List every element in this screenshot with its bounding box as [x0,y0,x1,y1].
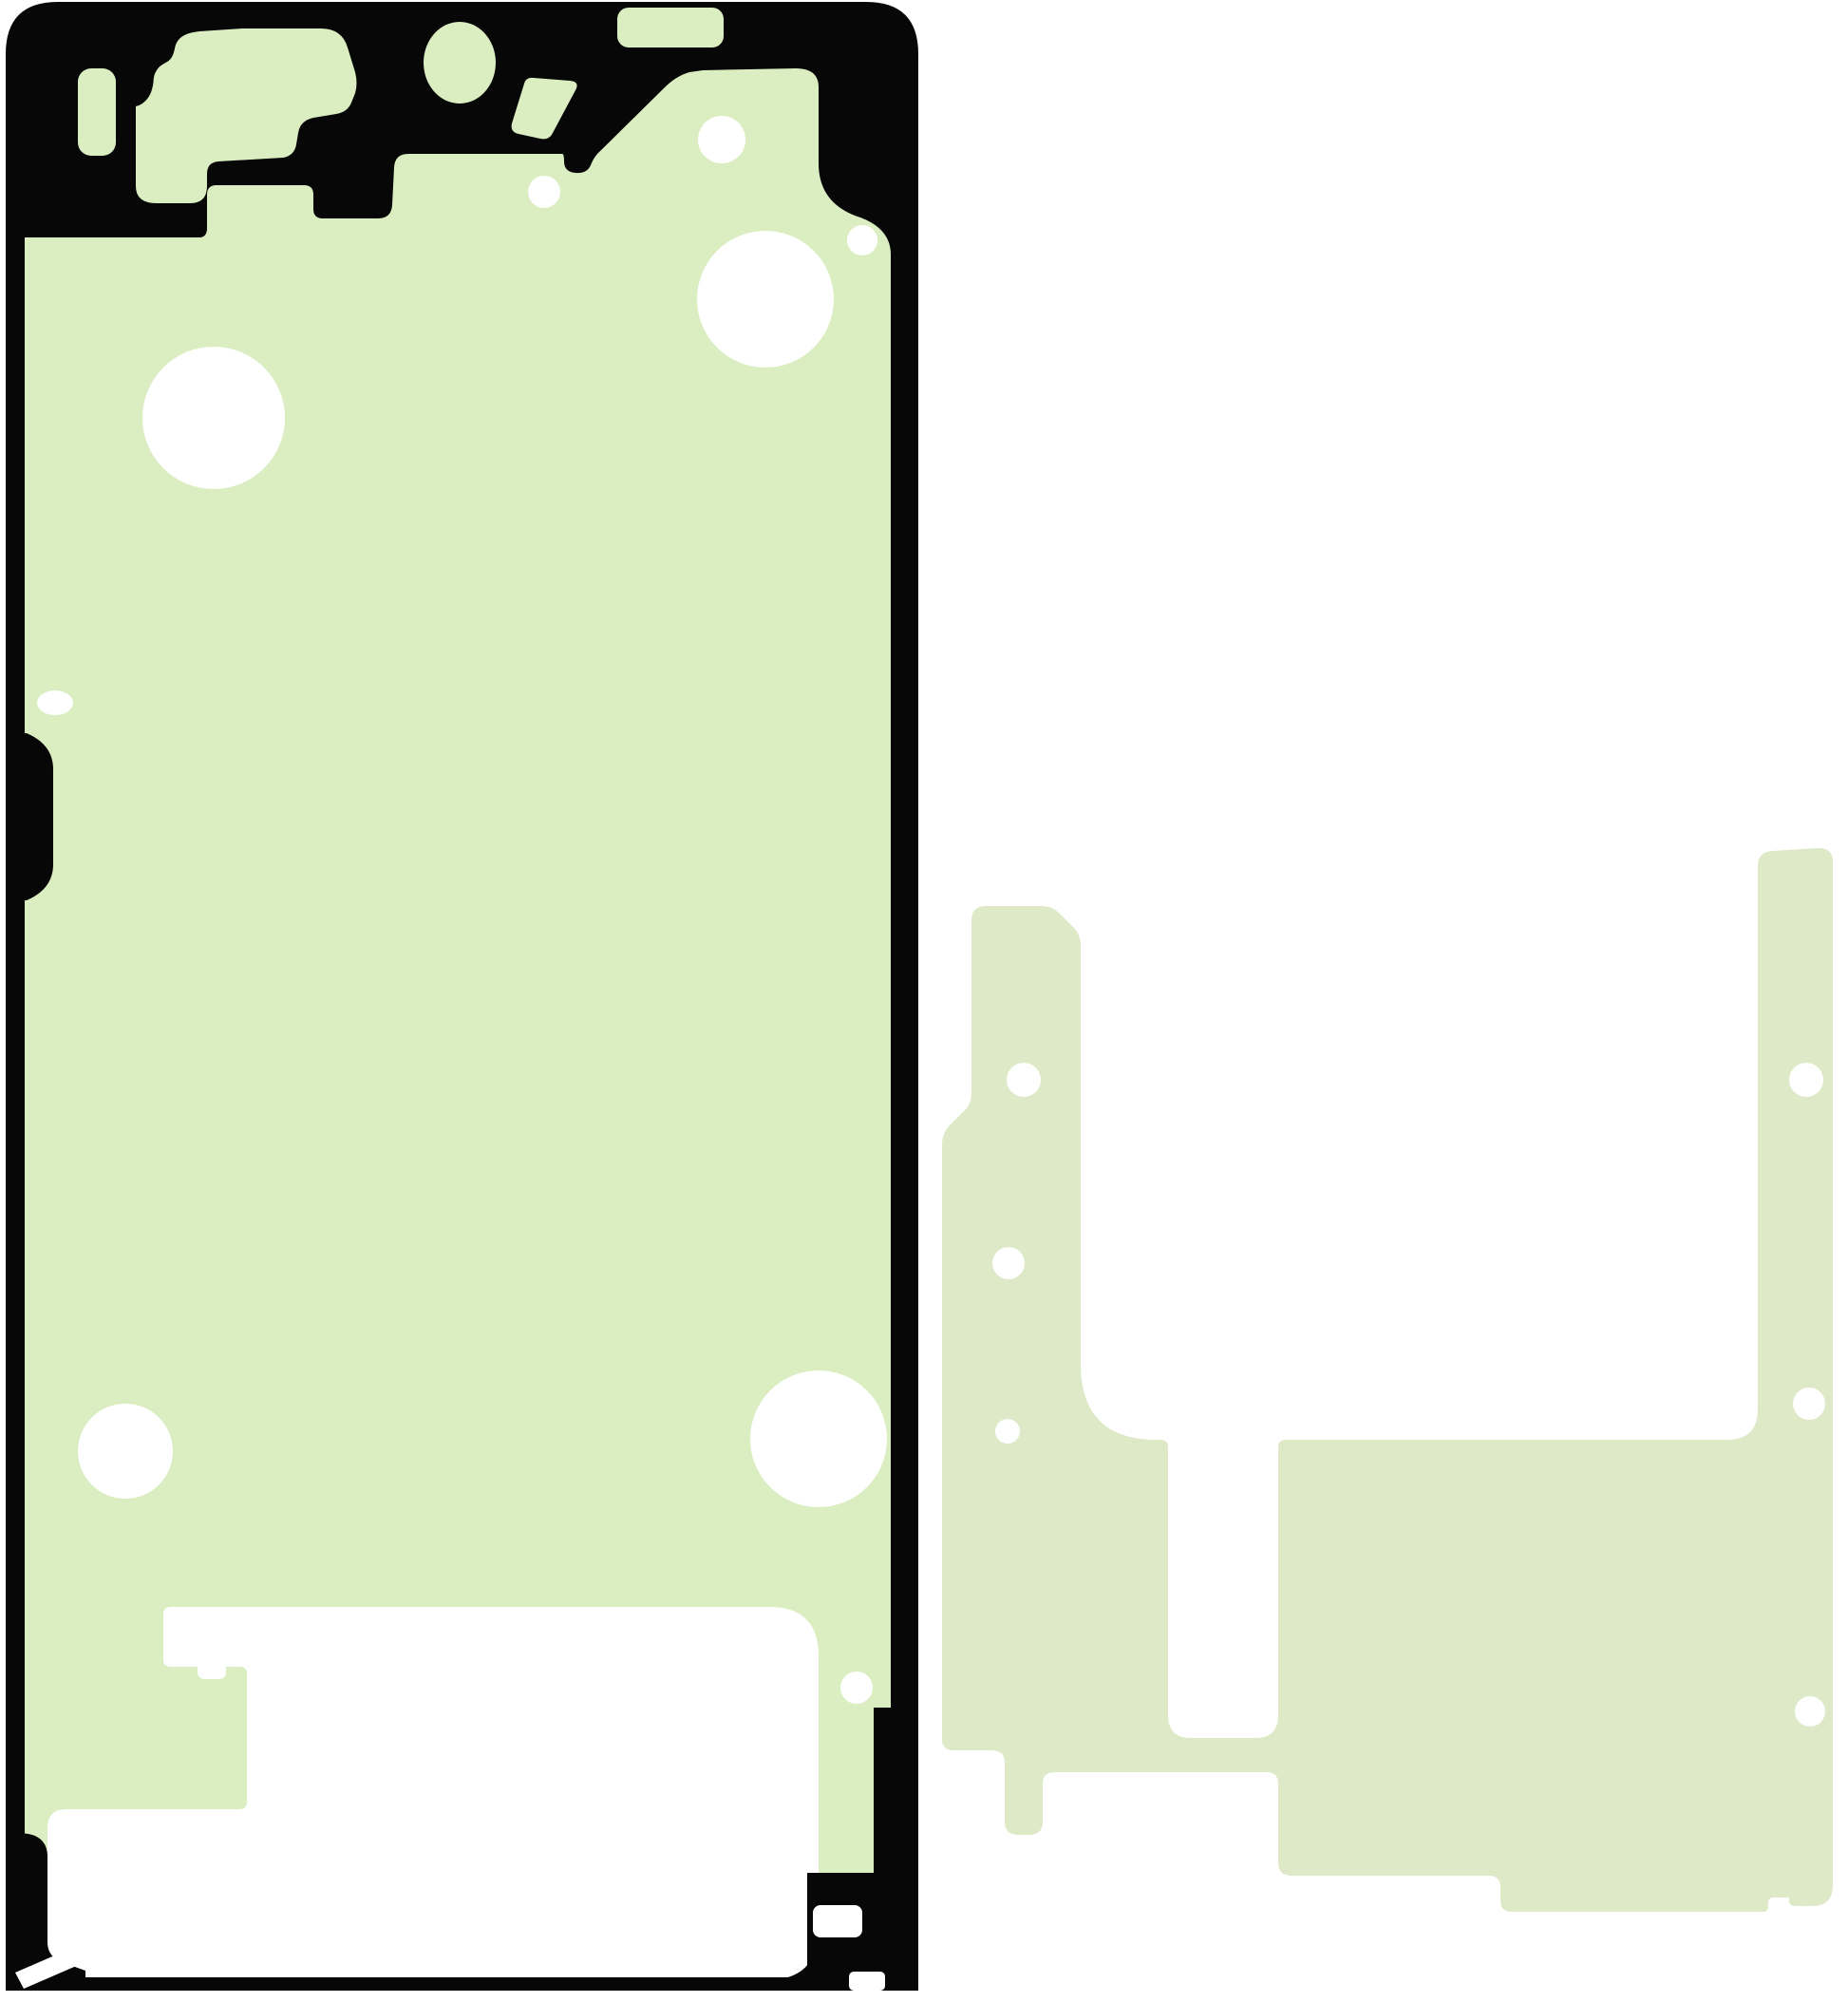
sheet-hole [1795,1696,1825,1727]
pull-tab-slot-right [813,1905,862,1937]
sheet-hole [1789,1063,1823,1097]
sheet-hole [1007,1063,1041,1097]
alignment-hole [847,225,877,255]
alignment-hole-large [78,1404,173,1499]
left-border-bulge [6,733,53,900]
front-camera-hole [424,22,496,104]
sheet-hole-small [995,1419,1020,1444]
right-border-step [874,1708,918,1880]
pull-tab-notch-right [849,1972,885,1991]
alignment-hole [698,116,745,163]
alignment-hole [840,1671,873,1704]
bottom-border-strip [52,1977,869,1991]
alignment-hole-large [142,347,285,489]
side-key-adhesive-island [78,68,116,156]
sheet-hole [1793,1388,1825,1420]
sheet-hole [992,1247,1025,1279]
product-photo [0,0,1848,2002]
rework-adhesive-sheet [942,848,1833,1912]
alignment-hole [528,176,560,208]
display-frame-adhesive [6,2,918,1991]
top-shoulder-adhesive-strip [617,8,724,47]
rework-sheet-body [942,848,1833,1912]
alignment-hole-large [697,231,834,368]
alignment-hole-large [750,1370,887,1507]
adhesive-sheets-illustration [0,0,1848,2002]
alignment-hole-small [37,690,73,715]
